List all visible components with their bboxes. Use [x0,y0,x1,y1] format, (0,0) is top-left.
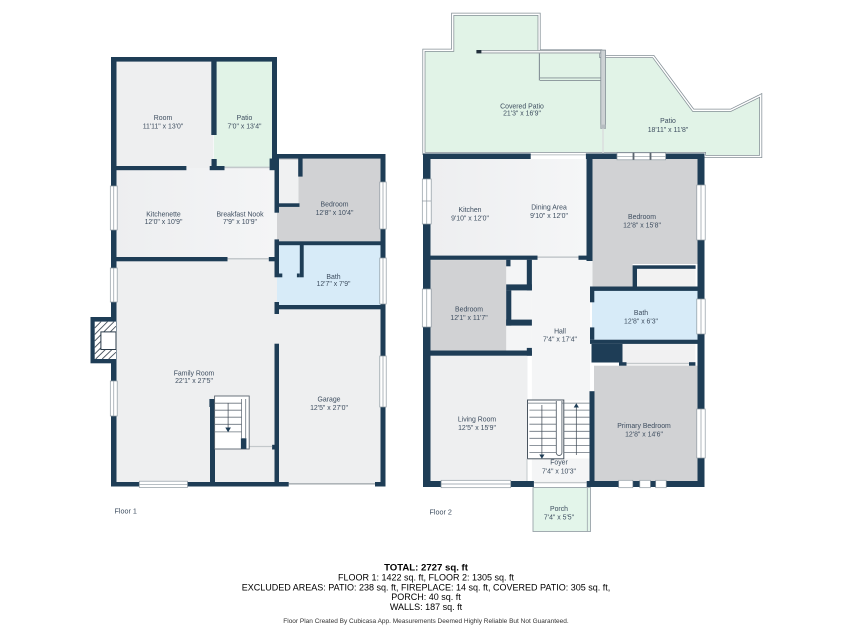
svg-text:Bedroom: Bedroom [321,201,349,208]
svg-text:7'4" x 17'4": 7'4" x 17'4" [543,336,578,343]
svg-text:Porch: Porch [550,506,568,513]
svg-text:18'11" x 11'8": 18'11" x 11'8" [648,127,689,134]
svg-text:12'0" x 10'9": 12'0" x 10'9" [145,219,183,226]
svg-text:Breakfast Nook: Breakfast Nook [216,211,264,218]
svg-text:Patio: Patio [660,118,676,125]
svg-text:7'0" x 13'4": 7'0" x 13'4" [228,123,263,130]
svg-text:Patio: Patio [237,115,253,122]
svg-text:Floor Plan Created By Cubicasa: Floor Plan Created By Cubicasa App. Meas… [283,618,569,625]
svg-text:PORCH: 40 sq. ft: PORCH: 40 sq. ft [391,592,461,602]
svg-text:Bath: Bath [326,274,340,281]
svg-text:9'10" x 12'0": 9'10" x 12'0" [530,213,568,220]
svg-text:Bedroom: Bedroom [628,214,656,221]
svg-text:22'1" x 27'5": 22'1" x 27'5" [175,378,213,385]
svg-text:Kitchen: Kitchen [459,207,482,214]
svg-text:WALLS: 187 sq. ft: WALLS: 187 sq. ft [390,602,463,612]
svg-text:EXCLUDED AREAS: PATIO: 238 sq.: EXCLUDED AREAS: PATIO: 238 sq. ft, FIREP… [242,582,610,592]
svg-text:FLOOR 1: 1422 sq. ft, FLOOR 2:: FLOOR 1: 1422 sq. ft, FLOOR 2: 1305 sq. … [338,573,515,583]
svg-text:12'7" x 7'9": 12'7" x 7'9" [317,281,352,288]
svg-text:Bath: Bath [634,310,648,317]
svg-text:Bedroom: Bedroom [455,307,483,314]
svg-text:12'8" x 14'6": 12'8" x 14'6" [625,431,663,438]
svg-text:12'8" x 10'4": 12'8" x 10'4" [316,210,354,217]
svg-text:Floor 1: Floor 1 [115,507,137,516]
svg-text:Hall: Hall [554,328,566,335]
svg-text:Floor 2: Floor 2 [430,508,452,517]
svg-text:Foyer: Foyer [550,460,568,467]
svg-text:Garage: Garage [318,396,341,403]
svg-text:12'8" x 15'8": 12'8" x 15'8" [623,222,661,229]
svg-text:Dining Area: Dining Area [531,204,567,211]
svg-text:9'10" x 12'0": 9'10" x 12'0" [451,215,489,222]
svg-text:21'3" x 16'9": 21'3" x 16'9" [503,111,541,118]
svg-text:7'9" x 10'9": 7'9" x 10'9" [223,219,258,226]
svg-text:11'11" x 13'0": 11'11" x 13'0" [143,123,184,130]
svg-text:Room: Room [154,115,173,122]
svg-text:12'5" x 27'0": 12'5" x 27'0" [310,405,348,412]
svg-text:12'1" x 11'7": 12'1" x 11'7" [450,315,488,322]
svg-text:12'5" x 15'9": 12'5" x 15'9" [458,425,496,432]
svg-text:7'4" x 10'3": 7'4" x 10'3" [542,468,577,475]
svg-text:Covered Patio: Covered Patio [500,103,544,110]
svg-text:Kitchenette: Kitchenette [146,211,181,218]
svg-text:Family Room: Family Room [174,370,215,377]
svg-text:Primary Bedroom: Primary Bedroom [617,423,671,430]
svg-text:7'4" x 5'5": 7'4" x 5'5" [544,514,575,521]
svg-text:Living Room: Living Room [458,417,497,424]
svg-text:12'8" x 6'3": 12'8" x 6'3" [624,318,659,325]
